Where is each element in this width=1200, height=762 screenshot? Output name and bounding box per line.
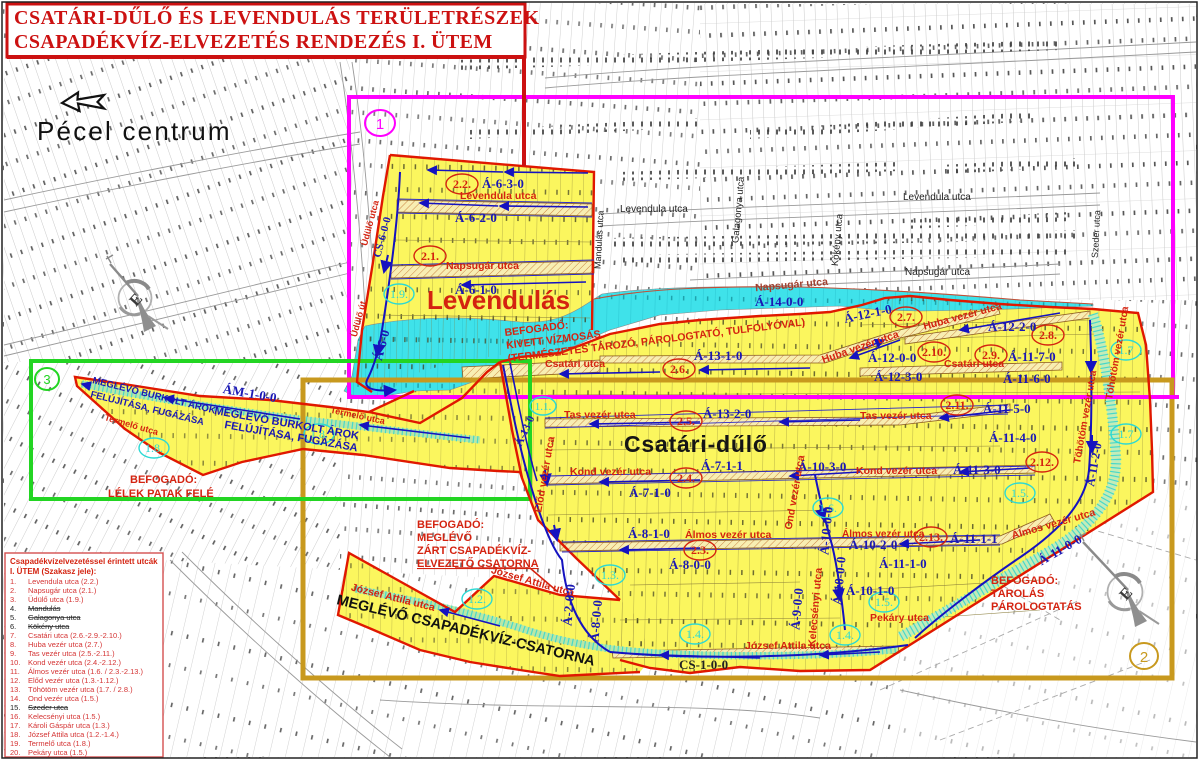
svg-text:József Attila utca (1.2.-1.4.): József Attila utca (1.2.-1.4.) (28, 730, 119, 739)
svg-text:Napsugár utca (2.1.): Napsugár utca (2.1.) (28, 586, 97, 595)
svg-text:Galagonya utca: Galagonya utca (28, 613, 81, 622)
svg-text:Á-13-2-0: Á-13-2-0 (703, 406, 751, 421)
svg-text:11.: 11. (10, 667, 20, 676)
svg-text:1.3.: 1.3. (601, 568, 619, 582)
svg-text:PÁROLOGTATÁS: PÁROLOGTATÁS (991, 600, 1082, 613)
svg-text:20.: 20. (10, 748, 20, 757)
svg-text:Kelecsényi utca (1.5.): Kelecsényi utca (1.5.) (28, 712, 101, 721)
svg-text:Á-6-2-0: Á-6-2-0 (455, 210, 497, 225)
svg-text:Levendula utca (2.2.): Levendula utca (2.2.) (28, 577, 99, 586)
svg-text:3.: 3. (10, 595, 16, 604)
svg-text:2.7.: 2.7. (897, 310, 915, 324)
svg-text:Levendulás: Levendulás (427, 285, 570, 315)
svg-text:Csatári-dűlő: Csatári-dűlő (624, 431, 768, 457)
svg-text:Á-6-1-0: Á-6-1-0 (455, 282, 497, 297)
svg-text:Tas vezér utca: Tas vezér utca (564, 409, 636, 421)
svg-text:Pekáry utca (1.5.): Pekáry utca (1.5.) (28, 748, 88, 757)
svg-text:Á-7-1-1: Á-7-1-1 (701, 458, 743, 473)
svg-text:1: 1 (376, 116, 384, 133)
svg-text:Á-11-3-0: Á-11-3-0 (953, 462, 1001, 477)
svg-text:Csatári utca: Csatári utca (944, 358, 1004, 370)
svg-text:13.: 13. (10, 685, 20, 694)
svg-text:Levendula utca: Levendula utca (903, 192, 971, 203)
svg-text:2.12.: 2.12. (1030, 455, 1054, 469)
svg-text:2.3.: 2.3. (691, 543, 709, 557)
svg-text:8.: 8. (10, 640, 16, 649)
svg-text:BEFOGADÓ:: BEFOGADÓ: (130, 473, 197, 486)
svg-text:5.: 5. (10, 613, 16, 622)
svg-text:2.10.: 2.10. (922, 345, 946, 359)
svg-text:BEFOGADÓ:: BEFOGADÓ: (417, 518, 484, 531)
svg-text:2.2.: 2.2. (453, 177, 471, 191)
svg-text:Á-14-0-0: Á-14-0-0 (755, 294, 803, 309)
svg-text:Á-7-1-0: Á-7-1-0 (629, 485, 671, 500)
svg-text:17.: 17. (10, 721, 20, 730)
svg-text:Álmos vezér utca (1.6. / 2.3.-: Álmos vezér utca (1.6. / 2.3.-2.13.) (28, 667, 144, 676)
svg-text:Huba vezér utca (2.7.): Huba vezér utca (2.7.) (28, 640, 103, 649)
svg-text:14.: 14. (10, 694, 20, 703)
svg-text:1.1.: 1.1. (535, 401, 552, 413)
svg-text:Csapadékvízelvezetéssel érinte: Csapadékvízelvezetéssel érintett utcák (10, 557, 158, 566)
svg-text:Csatári utca (2.6.-2.9.-2.10.): Csatári utca (2.6.-2.9.-2.10.) (28, 631, 122, 640)
svg-text:Á-13-1-0: Á-13-1-0 (694, 348, 742, 363)
svg-text:Á-12-3-0: Á-12-3-0 (874, 369, 922, 384)
svg-text:Előd vezér utca (1.3.-1.12.): Előd vezér utca (1.3.-1.12.) (28, 676, 119, 685)
svg-text:10.: 10. (10, 658, 20, 667)
svg-text:2.8.: 2.8. (1039, 328, 1057, 342)
svg-text:Kond vezér utca: Kond vezér utca (570, 466, 651, 478)
svg-text:1.: 1. (10, 577, 16, 586)
svg-text:Á-11-1-1: Á-11-1-1 (950, 531, 998, 546)
svg-text:7.: 7. (10, 631, 16, 640)
svg-text:Á-11-5-0: Á-11-5-0 (983, 401, 1031, 416)
svg-text:2.1.: 2.1. (421, 249, 439, 263)
svg-text:Á-11-6-0: Á-11-6-0 (1003, 371, 1051, 386)
svg-text:Károli Gáspár utca (1.3.): Károli Gáspár utca (1.3.) (28, 721, 110, 730)
svg-text:Á-10-1-0: Á-10-1-0 (846, 583, 894, 598)
svg-text:4.: 4. (10, 604, 16, 613)
svg-text:2.4.: 2.4. (677, 471, 695, 485)
svg-text:Töhötöm vezér utca (1.7. / 2.8: Töhötöm vezér utca (1.7. / 2.8.) (28, 685, 133, 694)
svg-text:Álmos vezér utca: Álmos vezér utca (685, 528, 772, 541)
svg-text:Szeder utca: Szeder utca (28, 703, 69, 712)
svg-text:Levendula utca: Levendula utca (620, 204, 688, 215)
svg-text:Á-12-2-0: Á-12-2-0 (988, 319, 1036, 334)
svg-text:12.: 12. (10, 676, 20, 685)
svg-text:18.: 18. (10, 730, 20, 739)
svg-text:Á-12-0-0: Á-12-0-0 (868, 350, 916, 365)
svg-text:Á-11-4-0: Á-11-4-0 (989, 430, 1037, 445)
svg-text:Pekáry utca: Pekáry utca (870, 612, 929, 624)
svg-text:Á-11-1-0: Á-11-1-0 (879, 556, 927, 571)
svg-text:LÉLEK PATAK FELÉ: LÉLEK PATAK FELÉ (108, 487, 214, 500)
svg-text:Tas vezér utca (2.5.-2.11.): Tas vezér utca (2.5.-2.11.) (28, 649, 115, 658)
svg-text:Á-6-3-0: Á-6-3-0 (482, 176, 524, 191)
svg-text:Napsugár utca: Napsugár utca (446, 260, 519, 272)
svg-text:1.8.: 1.8. (145, 441, 163, 455)
svg-text:2.: 2. (10, 586, 16, 595)
svg-text:Termelő utca (1.8.): Termelő utca (1.8.) (28, 739, 91, 748)
svg-text:Kökény utca: Kökény utca (28, 622, 70, 631)
svg-text:2.5.: 2.5. (677, 414, 695, 428)
svg-text:1.9.: 1.9. (390, 287, 408, 301)
svg-text:ZÁRT CSAPADÉKVÍZ-: ZÁRT CSAPADÉKVÍZ- (417, 544, 531, 557)
svg-text:2.11.: 2.11. (945, 398, 968, 412)
svg-text:Ond vezér utca (1.5.): Ond vezér utca (1.5.) (28, 694, 99, 703)
svg-text:CSAPADÉKVÍZ-ELVEZETÉS RENDEZÉS: CSAPADÉKVÍZ-ELVEZETÉS RENDEZÉS I. ÜTEM (14, 30, 493, 53)
svg-text:15.: 15. (10, 703, 20, 712)
svg-text:3: 3 (43, 372, 50, 387)
svg-text:1.5.: 1.5. (1011, 486, 1029, 500)
svg-text:CSATÁRI-DŰLŐ ÉS LEVENDULÁS TER: CSATÁRI-DŰLŐ ÉS LEVENDULÁS TERÜLETRÉSZEK (14, 5, 540, 29)
svg-text:BEFOGADÓ:: BEFOGADÓ: (991, 574, 1058, 587)
svg-text:TÁROLÁS: TÁROLÁS (991, 587, 1044, 600)
svg-text:Á-11-7-0: Á-11-7-0 (1008, 349, 1056, 364)
svg-text:Á-8-1-0: Á-8-1-0 (628, 526, 670, 541)
svg-text:Üdülő utca (1.9.): Üdülő utca (1.9.) (28, 595, 84, 604)
svg-text:1.2.: 1.2. (468, 592, 486, 606)
svg-text:CS-1-0-0: CS-1-0-0 (679, 657, 728, 672)
svg-text:MEGLÉVŐ: MEGLÉVŐ (417, 531, 472, 544)
svg-text:2.6.: 2.6. (670, 362, 688, 376)
svg-text:Levendula utca: Levendula utca (460, 190, 537, 202)
svg-text:Napsugár utca: Napsugár utca (905, 267, 970, 278)
svg-text:I. ÜTEM (Szakasz jele):: I. ÜTEM (Szakasz jele): (10, 567, 96, 576)
svg-text:2: 2 (1140, 649, 1148, 666)
svg-text:Kond vezér utca: Kond vezér utca (856, 465, 937, 477)
svg-text:Á-10-3-0: Á-10-3-0 (798, 459, 846, 474)
svg-text:Á-10-2-0: Á-10-2-0 (849, 537, 897, 552)
svg-text:19.: 19. (10, 739, 20, 748)
svg-text:1.7: 1.7 (1119, 427, 1134, 441)
svg-text:1.4.: 1.4. (686, 627, 704, 641)
svg-text:Mandulás: Mandulás (28, 604, 61, 613)
svg-text:16.: 16. (10, 712, 20, 721)
svg-text:Á-8-0-0: Á-8-0-0 (669, 557, 711, 572)
svg-text:6.: 6. (10, 622, 16, 631)
svg-text:Csatári utca: Csatári utca (545, 358, 605, 370)
svg-text:Tas vezér utca: Tas vezér utca (860, 410, 932, 422)
svg-text:Pécel centrum: Pécel centrum (37, 116, 232, 146)
svg-text:9.: 9. (10, 649, 16, 658)
svg-text:Kond vezér utca (2.4.-2.12.): Kond vezér utca (2.4.-2.12.) (28, 658, 121, 667)
svg-text:ELVEZETŐ CSATORNA: ELVEZETŐ CSATORNA (417, 557, 539, 570)
svg-text:1.4.: 1.4. (836, 628, 854, 642)
